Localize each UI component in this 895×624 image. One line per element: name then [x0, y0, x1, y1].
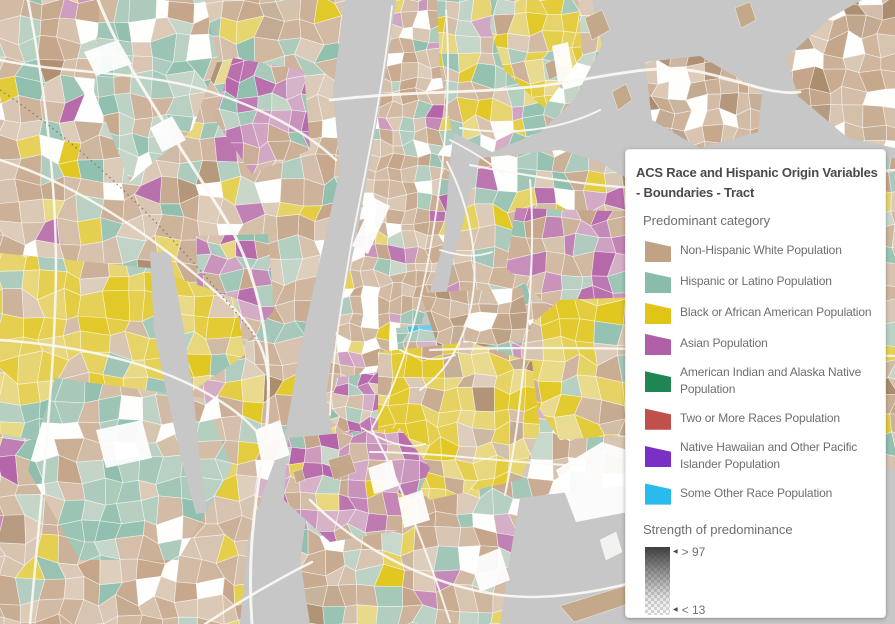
category-label: Black or African American Population	[680, 304, 871, 321]
ramp-bottom-label: ◀ < 13	[673, 603, 705, 617]
legend-item: Asian Population	[645, 333, 879, 355]
legend-item: Two or More Races Population	[645, 408, 879, 430]
category-label: Asian Population	[680, 335, 768, 352]
ramp-gradient-bar	[645, 547, 670, 615]
category-label: Some Other Race Population	[680, 485, 832, 502]
strength-ramp: ◀ > 97 ◀ < 13	[645, 547, 879, 615]
predominant-category-label: Predominant category	[643, 213, 879, 228]
legend-item: Some Other Race Population	[645, 483, 879, 505]
category-swatch	[645, 240, 671, 262]
category-swatch	[645, 271, 671, 293]
category-label: Two or More Races Population	[680, 410, 840, 427]
ramp-top-label: ◀ > 97	[673, 545, 705, 559]
ramp-bottom-marker-icon: ◀	[673, 607, 678, 613]
ramp-bottom-value: < 13	[682, 603, 706, 617]
legend-panel: ACS Race and Hispanic Origin Variables -…	[625, 149, 886, 618]
legend-title: ACS Race and Hispanic Origin Variables -…	[636, 163, 879, 202]
ramp-top-marker-icon: ◀	[673, 549, 678, 555]
legend-item: Native Hawaiian and Other Pacific Island…	[645, 439, 879, 474]
category-swatch	[645, 483, 671, 505]
category-swatch	[645, 408, 671, 430]
legend-item: Black or African American Population	[645, 302, 879, 324]
strength-of-predominance-label: Strength of predominance	[643, 522, 879, 537]
category-label: Hispanic or Latino Population	[680, 273, 832, 290]
category-label: Non-Hispanic White Population	[680, 242, 842, 259]
legend-item: American Indian and Alaska Native Popula…	[645, 364, 879, 399]
legend-item: Non-Hispanic White Population	[645, 240, 879, 262]
category-swatch	[645, 302, 671, 324]
ramp-labels: ◀ > 97 ◀ < 13	[673, 547, 743, 615]
category-swatch	[645, 333, 671, 355]
category-swatch	[645, 445, 671, 467]
ramp-top-value: > 97	[682, 545, 706, 559]
category-swatch	[645, 370, 671, 392]
legend-items: Non-Hispanic White PopulationHispanic or…	[645, 240, 879, 505]
category-label: Native Hawaiian and Other Pacific Island…	[680, 439, 879, 474]
legend-item: Hispanic or Latino Population	[645, 271, 879, 293]
category-label: American Indian and Alaska Native Popula…	[680, 364, 879, 399]
